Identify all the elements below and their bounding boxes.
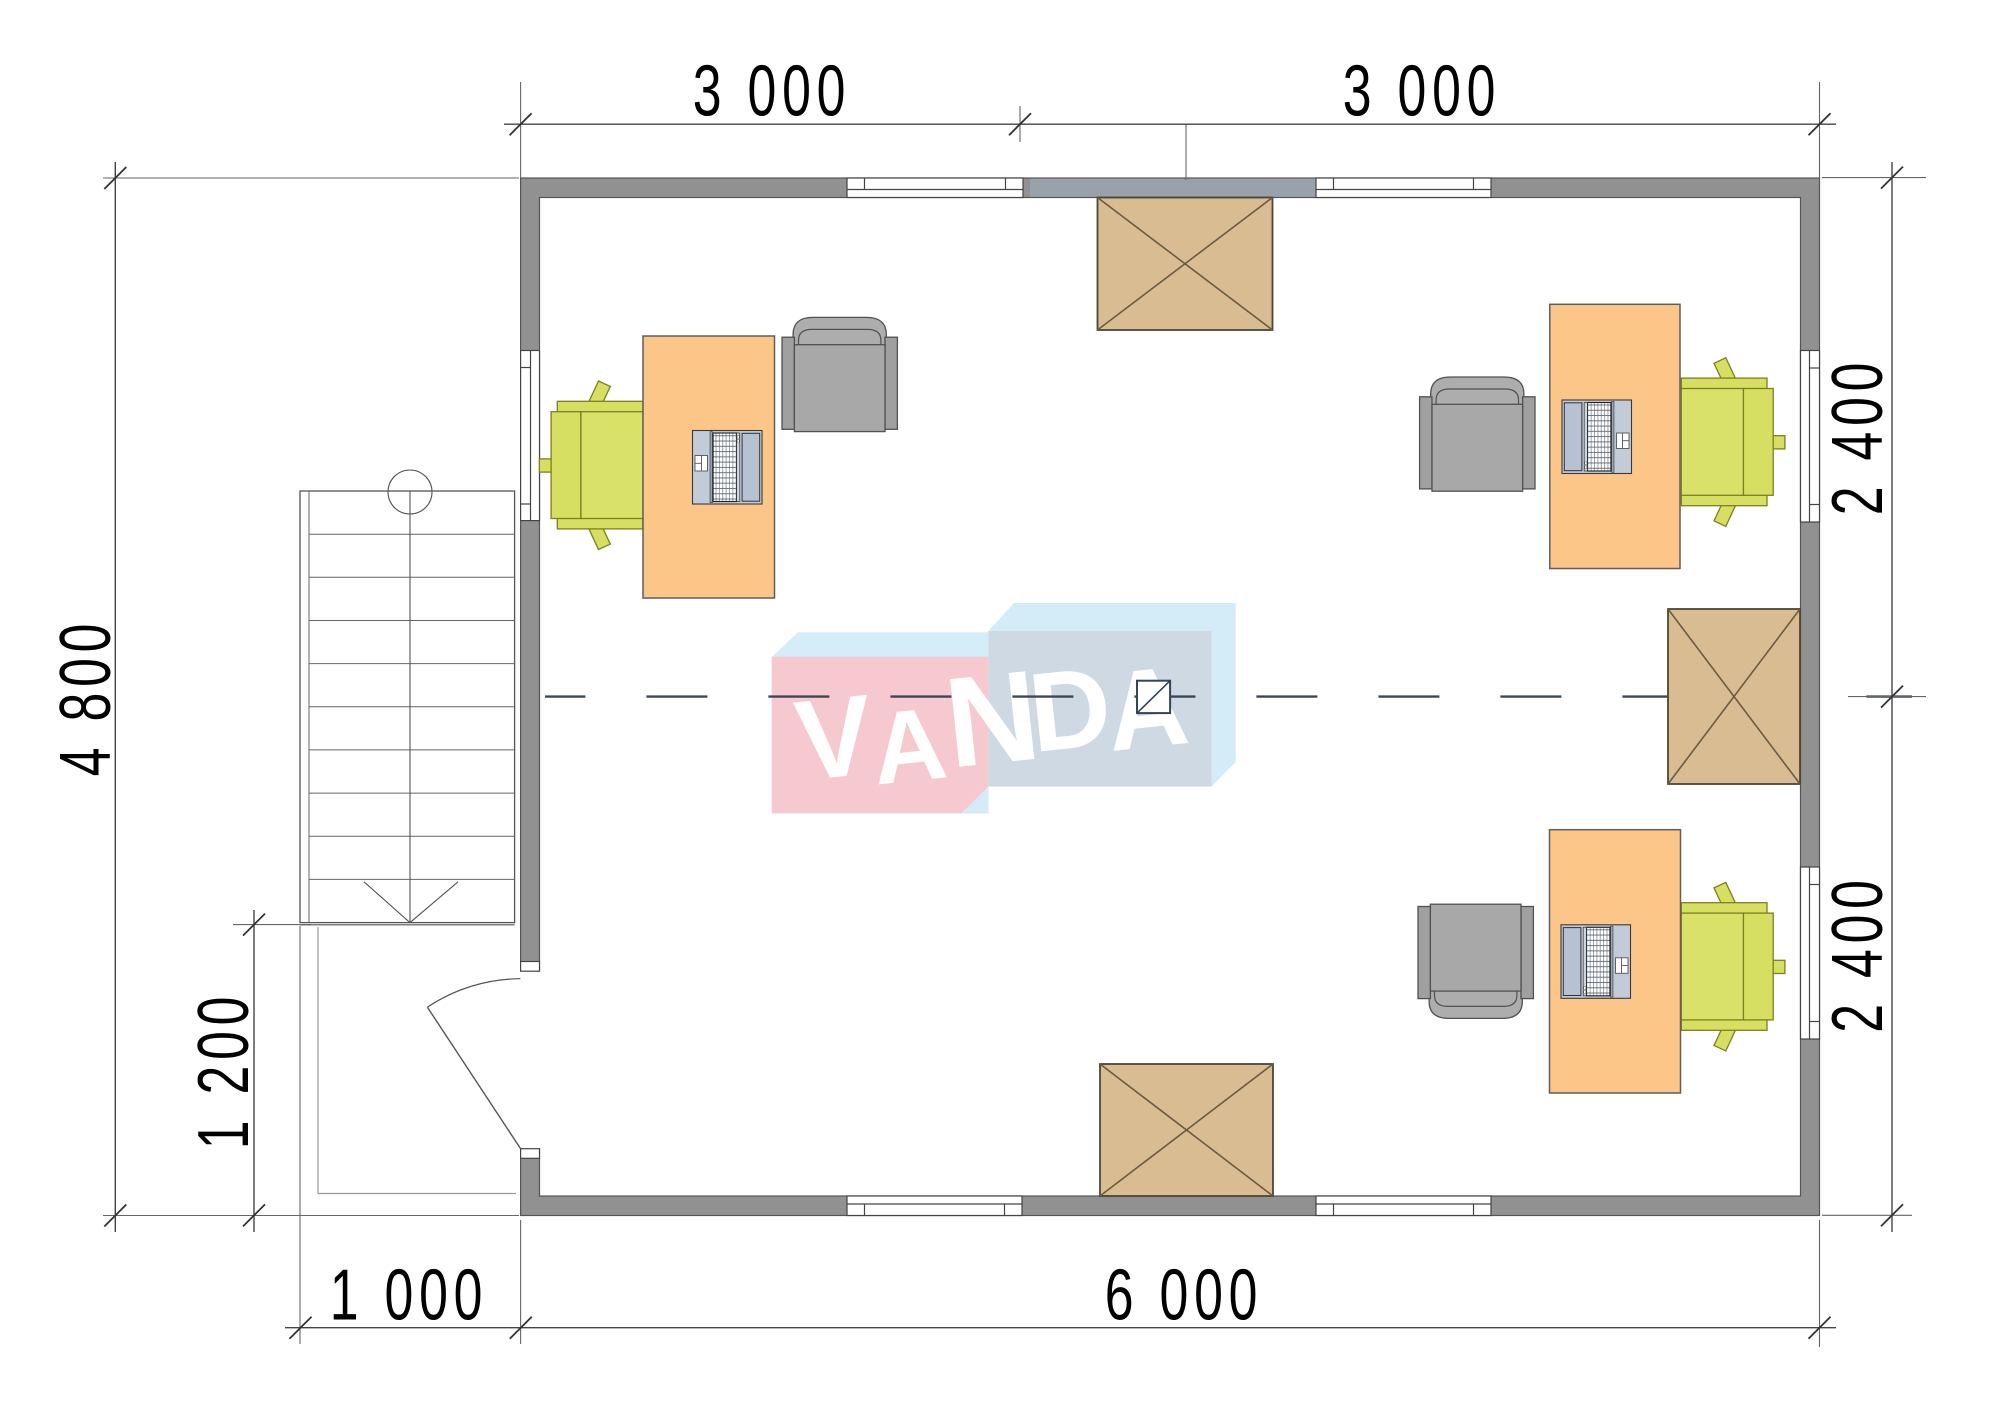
svg-text:A: A: [867, 685, 952, 806]
svg-text:4 800: 4 800: [46, 618, 126, 777]
svg-text:6 000: 6 000: [1105, 1255, 1264, 1335]
svg-text:1 200: 1 200: [184, 991, 264, 1150]
svg-text:3 000: 3 000: [1343, 51, 1502, 131]
svg-text:3 000: 3 000: [693, 51, 852, 131]
svg-text:2 400: 2 400: [1818, 357, 1898, 516]
svg-text:1 000: 1 000: [330, 1255, 489, 1335]
svg-text:V: V: [790, 671, 879, 805]
svg-text:2 400: 2 400: [1818, 874, 1898, 1033]
